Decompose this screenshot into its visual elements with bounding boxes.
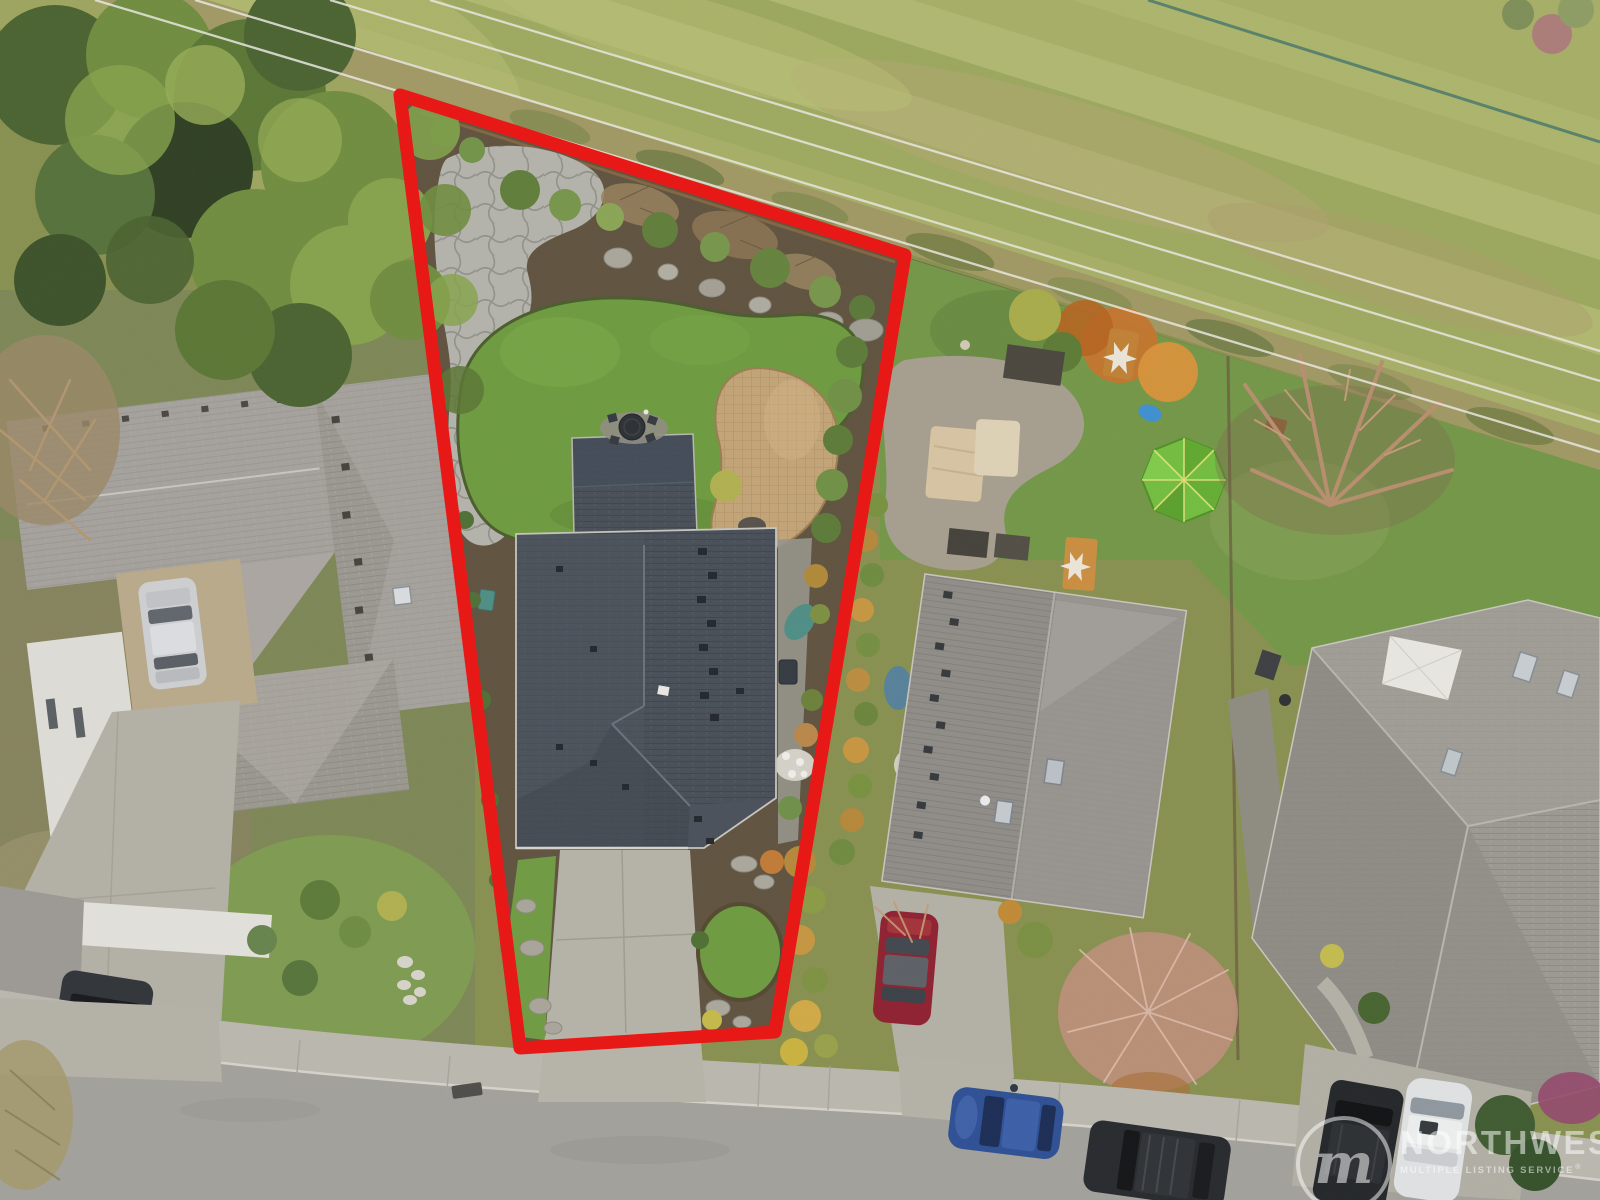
photo-grain — [0, 0, 1600, 1200]
watermark-line1: NORTHWEST — [1400, 1126, 1600, 1161]
watermark-line2: MULTIPLE LISTING SERVICE® — [1400, 1164, 1600, 1176]
aerial-scene — [0, 0, 1600, 1200]
logo-letter: m — [1314, 1136, 1373, 1192]
nwmls-logo-icon: m — [1296, 1116, 1392, 1200]
aerial-photo: m NORTHWEST MULTIPLE LISTING SERVICE® — [0, 0, 1600, 1200]
watermark: m NORTHWEST MULTIPLE LISTING SERVICE® — [1296, 1116, 1600, 1200]
watermark-text: NORTHWEST MULTIPLE LISTING SERVICE® — [1400, 1116, 1600, 1176]
